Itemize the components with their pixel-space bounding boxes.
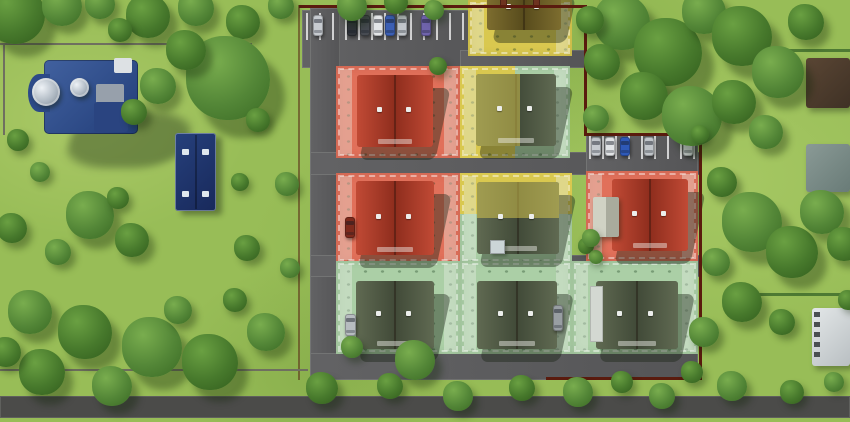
tree xyxy=(620,72,668,120)
tree xyxy=(649,383,675,409)
tree xyxy=(122,317,182,377)
tree xyxy=(58,305,112,359)
parked-car-silver xyxy=(345,314,356,336)
tree xyxy=(164,296,192,324)
roof-half-right xyxy=(395,75,433,147)
hedge-east-1 xyxy=(788,49,850,52)
churchyard-fence-west xyxy=(3,43,5,135)
tree xyxy=(108,18,132,42)
roof-ridge xyxy=(649,179,651,251)
parking-stall-line xyxy=(667,135,669,159)
parked-car xyxy=(591,137,601,156)
parish-outbuilding xyxy=(175,133,216,211)
tree xyxy=(780,380,804,404)
tree xyxy=(234,235,260,261)
entrance-porch xyxy=(378,139,413,144)
parked-car xyxy=(360,15,370,36)
parking-stall-line xyxy=(602,135,604,159)
roof-half-right xyxy=(518,182,559,254)
entrance-porch xyxy=(618,341,656,346)
bush xyxy=(838,290,850,310)
tree xyxy=(0,213,27,243)
tree xyxy=(178,0,214,26)
tree xyxy=(583,105,609,131)
roof-window xyxy=(376,311,381,316)
tree xyxy=(395,340,435,380)
tree xyxy=(268,0,294,19)
roof-half-right xyxy=(516,74,556,146)
tree xyxy=(788,4,824,40)
duplex-house-roof xyxy=(357,75,433,147)
tree xyxy=(827,227,850,261)
tree xyxy=(712,80,756,124)
roof-window xyxy=(632,211,637,216)
tree xyxy=(341,336,363,358)
roof-window xyxy=(527,106,532,111)
tree xyxy=(576,6,604,34)
roof-ridge xyxy=(516,281,518,349)
tree xyxy=(509,375,535,401)
parking-stall-line xyxy=(641,135,643,159)
roof-half-right xyxy=(395,181,434,255)
parking-stall-line xyxy=(306,13,308,40)
lot-driveway xyxy=(340,69,352,155)
roof-window xyxy=(498,214,503,219)
tree xyxy=(752,46,804,98)
roof-window xyxy=(406,107,411,112)
tree xyxy=(769,309,795,335)
tree xyxy=(611,371,633,393)
parking-stall-line xyxy=(332,13,334,40)
tree xyxy=(275,172,299,196)
bush xyxy=(231,173,249,191)
tree xyxy=(722,282,762,322)
tree xyxy=(563,377,593,407)
tree xyxy=(92,366,132,406)
duplex-house-roof xyxy=(596,281,678,349)
tree xyxy=(0,0,45,44)
tree xyxy=(766,226,818,278)
parked-car xyxy=(313,15,323,36)
tree xyxy=(0,337,21,367)
parking-stall-line xyxy=(654,135,656,159)
roof-window xyxy=(406,311,411,316)
parking-stall-line xyxy=(449,13,451,40)
bush xyxy=(589,250,603,264)
neighbor-house-teal-roof xyxy=(806,144,850,192)
parked-car xyxy=(644,137,654,156)
parish-ridge xyxy=(195,135,197,209)
tree xyxy=(223,288,247,312)
roof-ridge xyxy=(394,75,396,147)
duplex-house-roof xyxy=(477,281,557,349)
tree xyxy=(42,0,82,26)
parking-stall-line xyxy=(462,13,464,40)
roof-window xyxy=(617,311,622,316)
tree xyxy=(19,349,65,395)
tree xyxy=(126,0,170,38)
bush xyxy=(582,229,600,247)
bush xyxy=(824,372,844,392)
tree xyxy=(443,381,473,411)
roof-window xyxy=(528,311,533,316)
bush xyxy=(691,125,709,143)
parked-car xyxy=(605,137,615,156)
skylight xyxy=(202,191,209,197)
church-dome xyxy=(70,78,89,97)
bush xyxy=(429,57,447,75)
lot-driveway xyxy=(464,69,476,155)
skylight xyxy=(202,149,209,155)
aerial-masterplan xyxy=(0,0,850,422)
tree xyxy=(121,99,147,125)
lot-driveway xyxy=(576,264,588,351)
tree xyxy=(85,0,115,19)
tree xyxy=(247,313,285,351)
skylight xyxy=(182,149,189,155)
tree xyxy=(8,290,52,334)
roof-ridge xyxy=(515,74,517,146)
tree xyxy=(681,361,703,383)
bush xyxy=(424,0,444,20)
neighbor-house-brown-roof xyxy=(806,58,850,108)
roof-window xyxy=(498,311,503,316)
roof-half-right xyxy=(395,281,434,349)
tree xyxy=(182,334,238,390)
parked-car-red xyxy=(345,217,355,238)
roof-window xyxy=(377,107,382,112)
entrance-porch xyxy=(498,138,535,143)
parking-stall-line xyxy=(615,135,617,159)
tree xyxy=(584,44,620,80)
lot-driveway xyxy=(472,3,484,53)
roof-window xyxy=(648,311,653,316)
bush xyxy=(280,258,300,278)
roof-half-right xyxy=(637,281,678,349)
tree xyxy=(702,248,730,276)
roof-ridge xyxy=(517,182,519,254)
tree xyxy=(689,317,719,347)
roof-half-right xyxy=(517,281,557,349)
parking-stall-line xyxy=(410,13,412,40)
window-row xyxy=(814,312,820,362)
tree xyxy=(306,372,338,404)
entrance-porch xyxy=(499,341,536,346)
tree xyxy=(707,167,737,197)
tree xyxy=(166,30,206,70)
parked-car xyxy=(373,15,383,36)
duplex-house-roof xyxy=(356,181,434,255)
roof-window xyxy=(529,214,534,219)
tree xyxy=(107,187,129,209)
public-road-south xyxy=(0,396,850,418)
parked-car xyxy=(385,15,395,36)
roof-window xyxy=(661,211,666,216)
roof-window xyxy=(376,214,381,219)
roof-ridge xyxy=(394,181,396,255)
entrance-porch xyxy=(633,243,668,248)
parked-car-gray xyxy=(553,305,563,331)
roof-window xyxy=(497,106,502,111)
tree xyxy=(717,371,747,401)
roof-half-right xyxy=(650,179,688,251)
tree xyxy=(226,5,260,39)
parked-car xyxy=(620,137,630,156)
hedge-east-2 xyxy=(756,293,850,296)
duplex-house-roof xyxy=(612,179,688,251)
parked-car xyxy=(397,15,407,36)
tree xyxy=(7,129,29,151)
tree xyxy=(140,68,176,104)
tree xyxy=(377,373,403,399)
roof-ridge xyxy=(636,281,638,349)
tree xyxy=(45,239,71,265)
roof-window xyxy=(406,214,411,219)
duplex-house-roof xyxy=(356,281,434,349)
duplex-house-roof xyxy=(476,74,556,146)
garden-shed xyxy=(490,240,505,254)
boundary-west xyxy=(298,5,300,380)
church-dome xyxy=(32,78,60,106)
house-side-annex xyxy=(590,286,603,342)
entrance-porch xyxy=(377,247,413,252)
church-white-block xyxy=(114,58,132,73)
lot-driveway xyxy=(464,264,476,351)
lot-driveway xyxy=(444,69,456,155)
skylight xyxy=(182,191,189,197)
roof-ridge xyxy=(394,281,396,349)
tree xyxy=(246,108,270,132)
neighbor-house-white xyxy=(812,308,850,366)
tree xyxy=(115,223,149,257)
lot-driveway xyxy=(464,176,476,260)
tree xyxy=(749,115,783,149)
bush xyxy=(30,162,50,182)
